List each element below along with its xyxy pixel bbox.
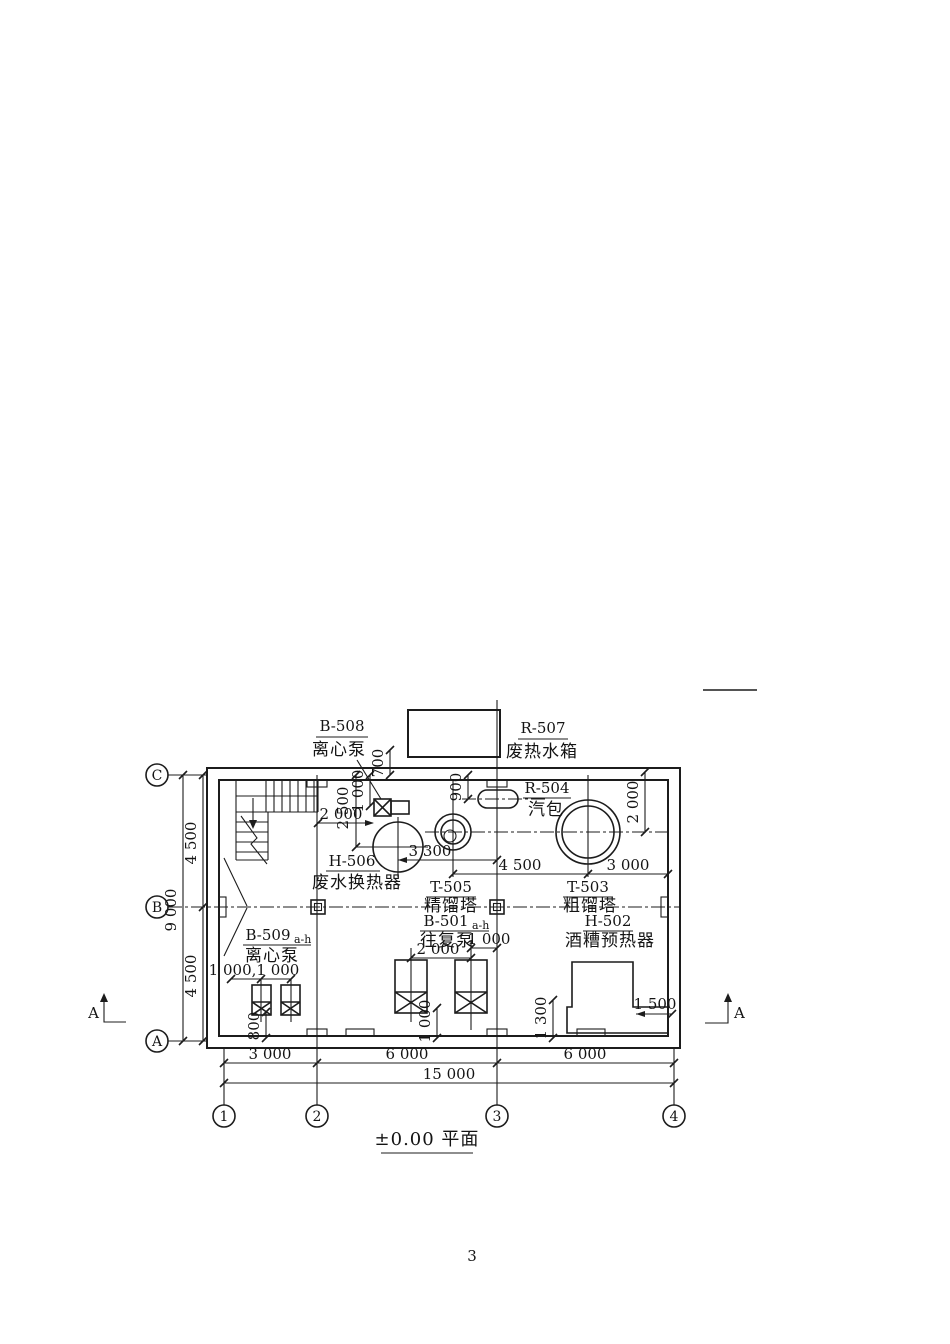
b501-name: 往复泵 <box>420 931 474 951</box>
b509-tag: B-509 <box>246 926 291 944</box>
grid-col-3: 3 <box>493 1109 502 1125</box>
dim-1500: 1 500 <box>634 995 677 1013</box>
dim-1300: 1 300 <box>532 997 550 1040</box>
h502-name: 酒糟预热器 <box>565 931 655 951</box>
b509-suffix: a-h <box>294 933 311 946</box>
dim-bottom-3000: 3 000 <box>249 1045 292 1063</box>
b509-name: 离心泵 <box>245 946 299 966</box>
dim-bottom-6000-a: 6 000 <box>386 1045 429 1063</box>
staircase <box>236 781 318 864</box>
grid-col-1: 1 <box>220 1109 229 1125</box>
b508-name: 离心泵 <box>312 740 366 760</box>
grid-row-b: B <box>152 900 162 916</box>
t503-tag: T-503 <box>567 878 609 896</box>
section-arrow-icon <box>100 993 108 1002</box>
dim-1000-b501-v: 1 000 <box>416 1000 434 1043</box>
dim-left-9000: 9 000 <box>162 889 180 932</box>
dim-3300: 3 300 <box>409 842 452 860</box>
bottom-dimensions: 3 000 6 000 6 000 15 000 <box>220 1045 678 1087</box>
floor-plan-drawing: 700 1 000 2 500 2 000 900 2 000 3 300 4 … <box>0 0 950 1344</box>
dim-700: 700 <box>369 749 387 778</box>
r507-name: 废热水箱 <box>506 742 578 762</box>
t505-tag: T-505 <box>430 878 472 896</box>
b501-suffix: a-h <box>472 919 489 932</box>
dim-3000-mid: 3 000 <box>607 856 650 874</box>
h506-name: 废水换热器 <box>312 873 402 893</box>
r507-tag: R-507 <box>521 719 566 737</box>
dim-left-4500-upper: 4 500 <box>182 822 200 865</box>
dim-bottom-15000: 15 000 <box>423 1065 476 1083</box>
b501-tag: B-501 <box>424 912 469 930</box>
stair-down-arrow-icon <box>249 820 257 829</box>
b508-tag: B-508 <box>320 717 365 735</box>
h502-tag: H-502 <box>585 912 632 930</box>
dim-bottom-6000-b: 6 000 <box>564 1045 607 1063</box>
title-text: ±0.00 平面 <box>375 1129 480 1150</box>
dim-900: 900 <box>447 773 465 802</box>
r504-name: 汽包 <box>528 800 564 820</box>
grid-col-2: 2 <box>313 1109 322 1125</box>
grid-row-c: C <box>152 768 163 784</box>
grid-row-a: A <box>151 1034 163 1050</box>
section-marker-left: A <box>87 993 126 1022</box>
dim-4500-mid: 4 500 <box>499 856 542 874</box>
section-marker-right: A <box>705 993 745 1023</box>
scanned-drawing-page: 700 1 000 2 500 2 000 900 2 000 3 300 4 … <box>0 0 950 1344</box>
dim-2000-t503: 2 000 <box>624 781 642 824</box>
drawing-title: ±0.00 平面 <box>375 1129 480 1153</box>
b508-pump-symbol <box>374 799 409 816</box>
dim-left-4500-lower: 4 500 <box>182 955 200 998</box>
r504-tag: R-504 <box>525 779 570 797</box>
wall-recess <box>346 1029 374 1036</box>
h506-tag: H-506 <box>329 852 376 870</box>
page-number: 3 <box>467 1247 477 1265</box>
r507-tank-symbol <box>408 710 500 757</box>
dim-2000-b508: 2 000 <box>320 805 363 823</box>
grid-col-4: 4 <box>670 1109 679 1125</box>
section-arrow-icon <box>724 993 732 1002</box>
section-label-left: A <box>87 1004 99 1022</box>
section-label-right: A <box>733 1004 745 1022</box>
dim-800: 800 <box>245 1012 263 1041</box>
